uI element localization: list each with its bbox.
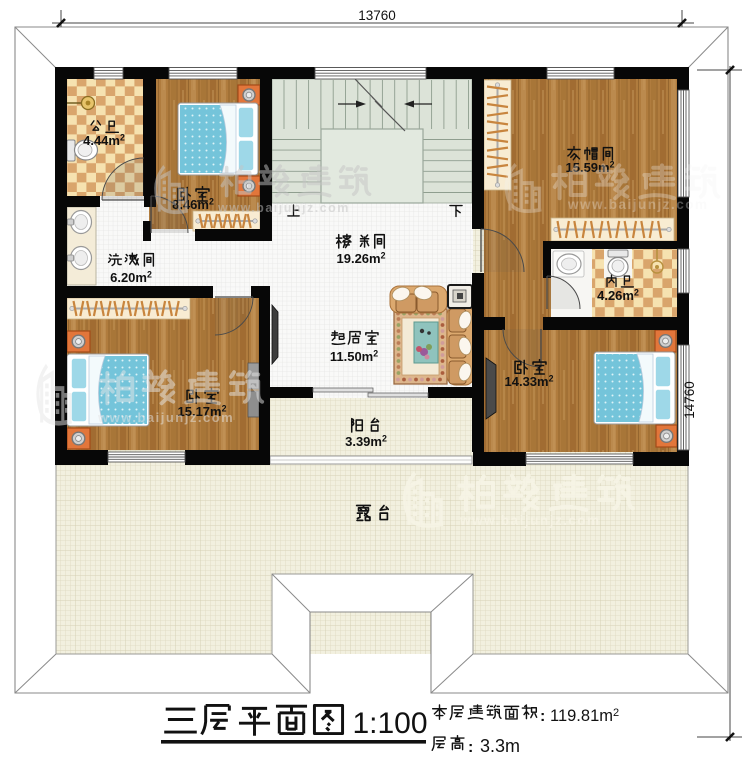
- svg-text:14.33m2: 14.33m2: [505, 373, 554, 389]
- svg-text:www.baijunjz.com: www.baijunjz.com: [217, 201, 350, 215]
- svg-text:19.26m2: 19.26m2: [337, 250, 386, 266]
- svg-text:3.3m: 3.3m: [480, 736, 520, 756]
- svg-text:3.39m2: 3.39m2: [345, 433, 387, 449]
- svg-text:www.baijunjz.com: www.baijunjz.com: [97, 410, 234, 425]
- svg-text:14760: 14760: [682, 381, 697, 419]
- svg-text:4.44m2: 4.44m2: [83, 132, 125, 148]
- svg-text:4.26m2: 4.26m2: [597, 287, 639, 303]
- svg-text:1:100: 1:100: [352, 707, 427, 740]
- svg-text:www.baijunjz.com: www.baijunjz.com: [459, 513, 601, 528]
- svg-text::: :: [468, 739, 473, 756]
- svg-text:119.81m2: 119.81m2: [550, 707, 619, 725]
- svg-text:11.50m2: 11.50m2: [330, 348, 378, 364]
- svg-text::: :: [540, 708, 545, 725]
- svg-text:6.20m2: 6.20m2: [110, 269, 152, 285]
- svg-text:www.baijunjz.com: www.baijunjz.com: [567, 197, 709, 212]
- svg-text:13760: 13760: [358, 8, 396, 23]
